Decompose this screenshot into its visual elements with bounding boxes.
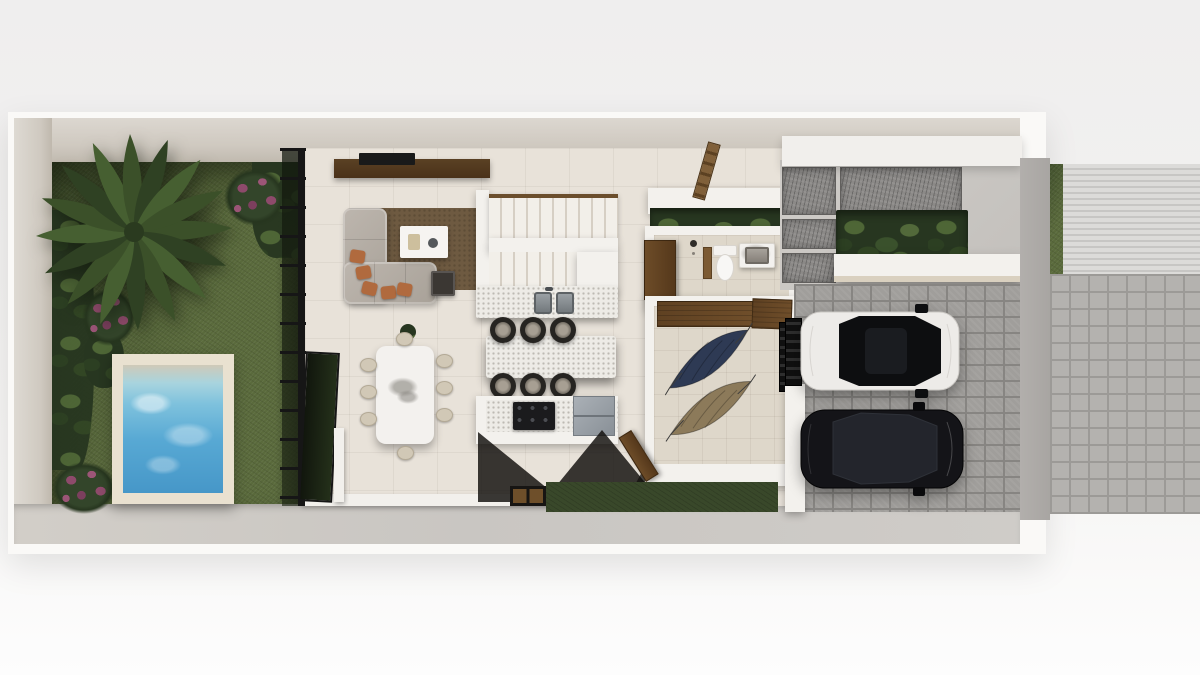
stair-rail <box>476 190 489 290</box>
stair-landing <box>489 238 618 252</box>
suv-mirror <box>915 389 928 398</box>
pool-water <box>123 365 223 493</box>
gas-stove <box>513 402 555 430</box>
palm-svg <box>18 116 250 348</box>
dining-chair <box>436 354 453 368</box>
coffee-table <box>400 226 448 258</box>
faucet <box>545 287 553 291</box>
dining-chair <box>436 408 453 422</box>
plunge-pool <box>112 354 234 504</box>
sedan-mirror <box>913 487 925 496</box>
suv-sunroof <box>865 328 907 374</box>
table-decor <box>428 238 438 248</box>
dining-chair <box>360 358 377 372</box>
sedan-glass <box>833 413 937 484</box>
floating-canopy <box>834 254 1024 282</box>
kitchen-sink <box>556 292 574 314</box>
stone-step-slab <box>782 219 836 249</box>
bar-stool <box>490 317 516 343</box>
textured-ramp-pad <box>1050 164 1200 274</box>
vanity-basin <box>745 247 769 264</box>
stone-step-slab <box>782 253 836 283</box>
dining-chair <box>360 412 377 426</box>
table-decor <box>408 234 420 250</box>
sofa-cushion <box>349 249 366 264</box>
shower-head <box>690 240 697 247</box>
dining-chair <box>436 381 453 395</box>
dining-chair <box>396 332 413 346</box>
kitchen-sink <box>534 292 552 314</box>
stone-step-slab <box>840 167 962 215</box>
grass-curb <box>1050 164 1063 274</box>
stone-step-slab <box>782 167 836 215</box>
entry-top-canopy <box>782 136 1022 166</box>
tv <box>359 153 415 165</box>
sofa-cushion <box>380 285 396 299</box>
shower-partition <box>703 247 712 279</box>
bathroom-door <box>644 240 676 300</box>
dining-chair <box>360 385 377 399</box>
dining-table <box>376 346 434 444</box>
floor-plan-scene <box>0 0 1200 675</box>
side-boundary-wall <box>1020 158 1050 520</box>
paver-sidewalk <box>1050 274 1200 514</box>
bar-stool <box>550 317 576 343</box>
white-suv <box>797 302 965 400</box>
stair-flight-upper <box>489 194 618 238</box>
bar-stool <box>520 317 546 343</box>
sofa-cushion <box>396 282 413 297</box>
glass-door-jamb <box>334 428 344 502</box>
refrigerator <box>573 396 615 436</box>
front-lawn-strip <box>546 482 778 512</box>
doormat <box>510 486 546 506</box>
black-sedan <box>797 402 967 496</box>
sedan-mirror <box>913 402 925 411</box>
palm-tree <box>18 116 250 348</box>
dining-chair <box>397 446 414 460</box>
flower-bush-bottom <box>52 462 116 514</box>
toilet-bowl <box>716 254 734 281</box>
palm-crown <box>124 222 144 242</box>
side-table <box>431 271 455 296</box>
sedan-svg <box>797 402 967 496</box>
suv-svg <box>797 302 965 400</box>
sofa-cushion <box>355 265 372 280</box>
suv-mirror <box>915 304 928 313</box>
